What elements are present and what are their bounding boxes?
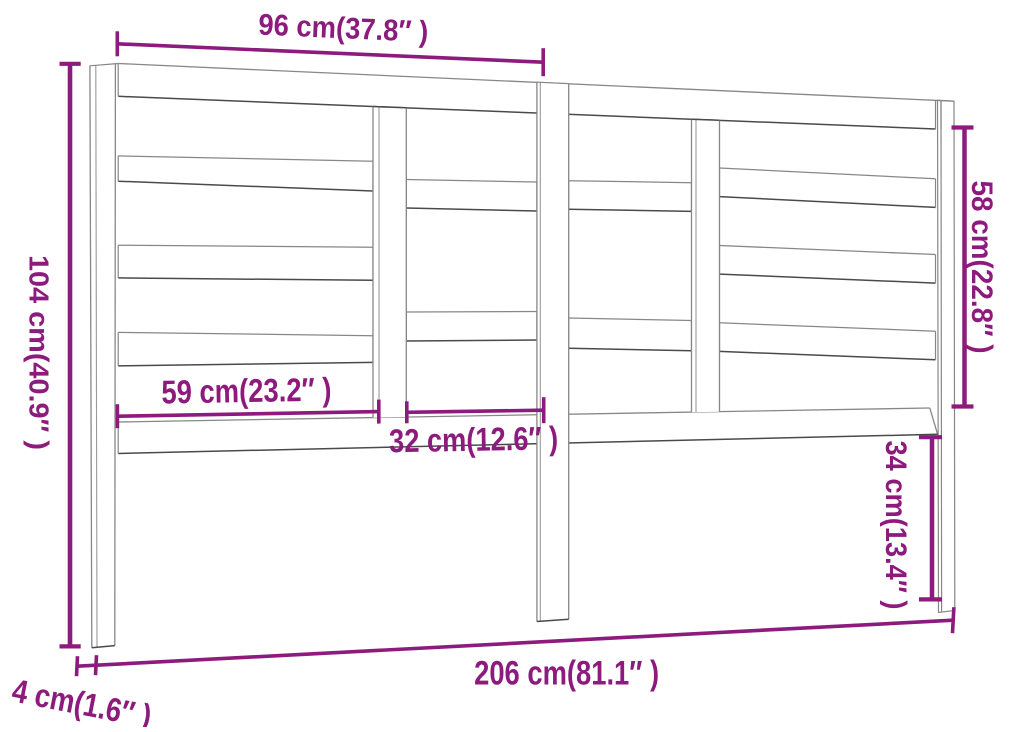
svg-text:206 cm(81.1″ ): 206 cm(81.1″ ) bbox=[474, 655, 659, 693]
svg-text:58 cm(22.8″ ): 58 cm(22.8″ ) bbox=[965, 181, 998, 354]
svg-text:104 cm(40.9″ ): 104 cm(40.9″ ) bbox=[24, 255, 55, 450]
svg-text:59 cm(23.2″ ): 59 cm(23.2″ ) bbox=[161, 371, 332, 411]
svg-text:32 cm(12.6″ ): 32 cm(12.6″ ) bbox=[389, 419, 559, 459]
svg-text:34 cm(13.4″ ): 34 cm(13.4″ ) bbox=[879, 441, 912, 610]
